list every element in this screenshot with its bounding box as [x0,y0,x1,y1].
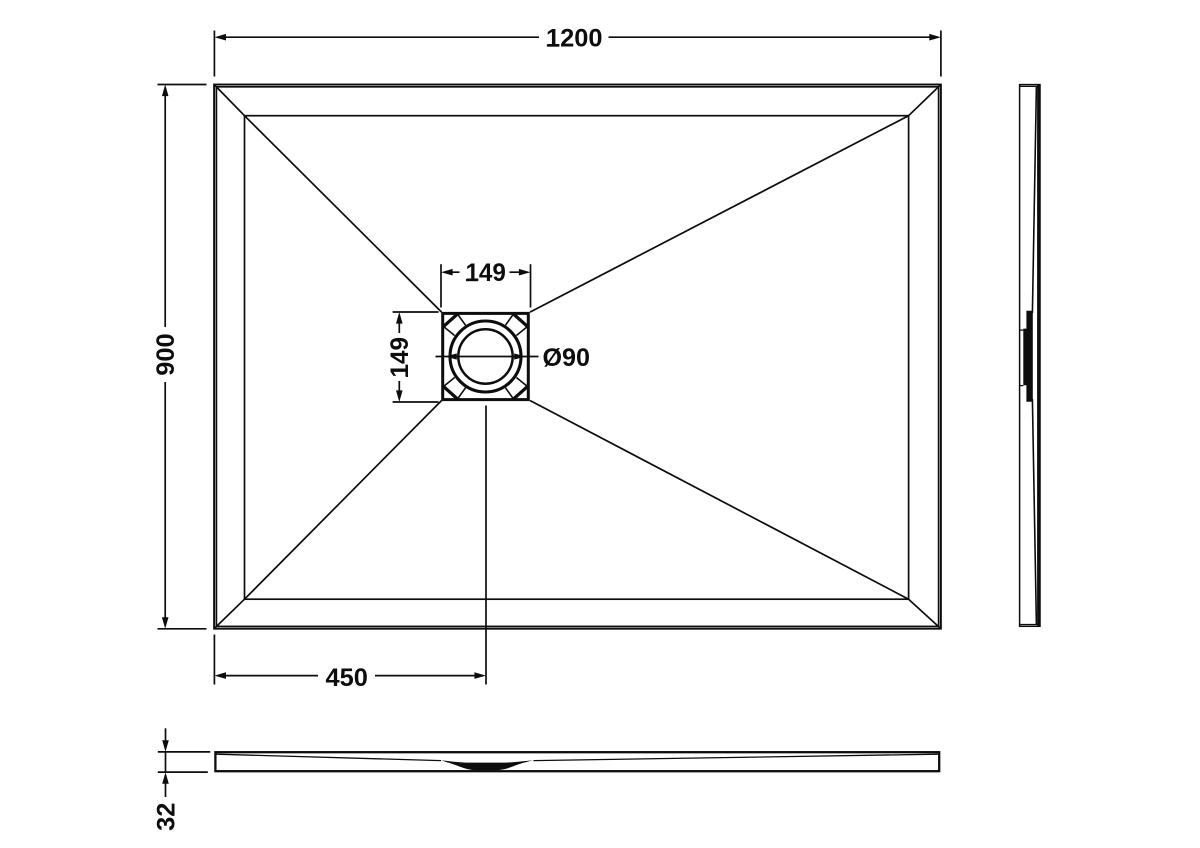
svg-text:32: 32 [153,803,181,831]
svg-text:Ø90: Ø90 [543,344,591,372]
svg-text:900: 900 [152,333,180,375]
svg-text:149: 149 [465,259,506,287]
svg-text:450: 450 [326,664,368,692]
svg-text:1200: 1200 [546,25,602,53]
svg-text:149: 149 [386,337,414,378]
